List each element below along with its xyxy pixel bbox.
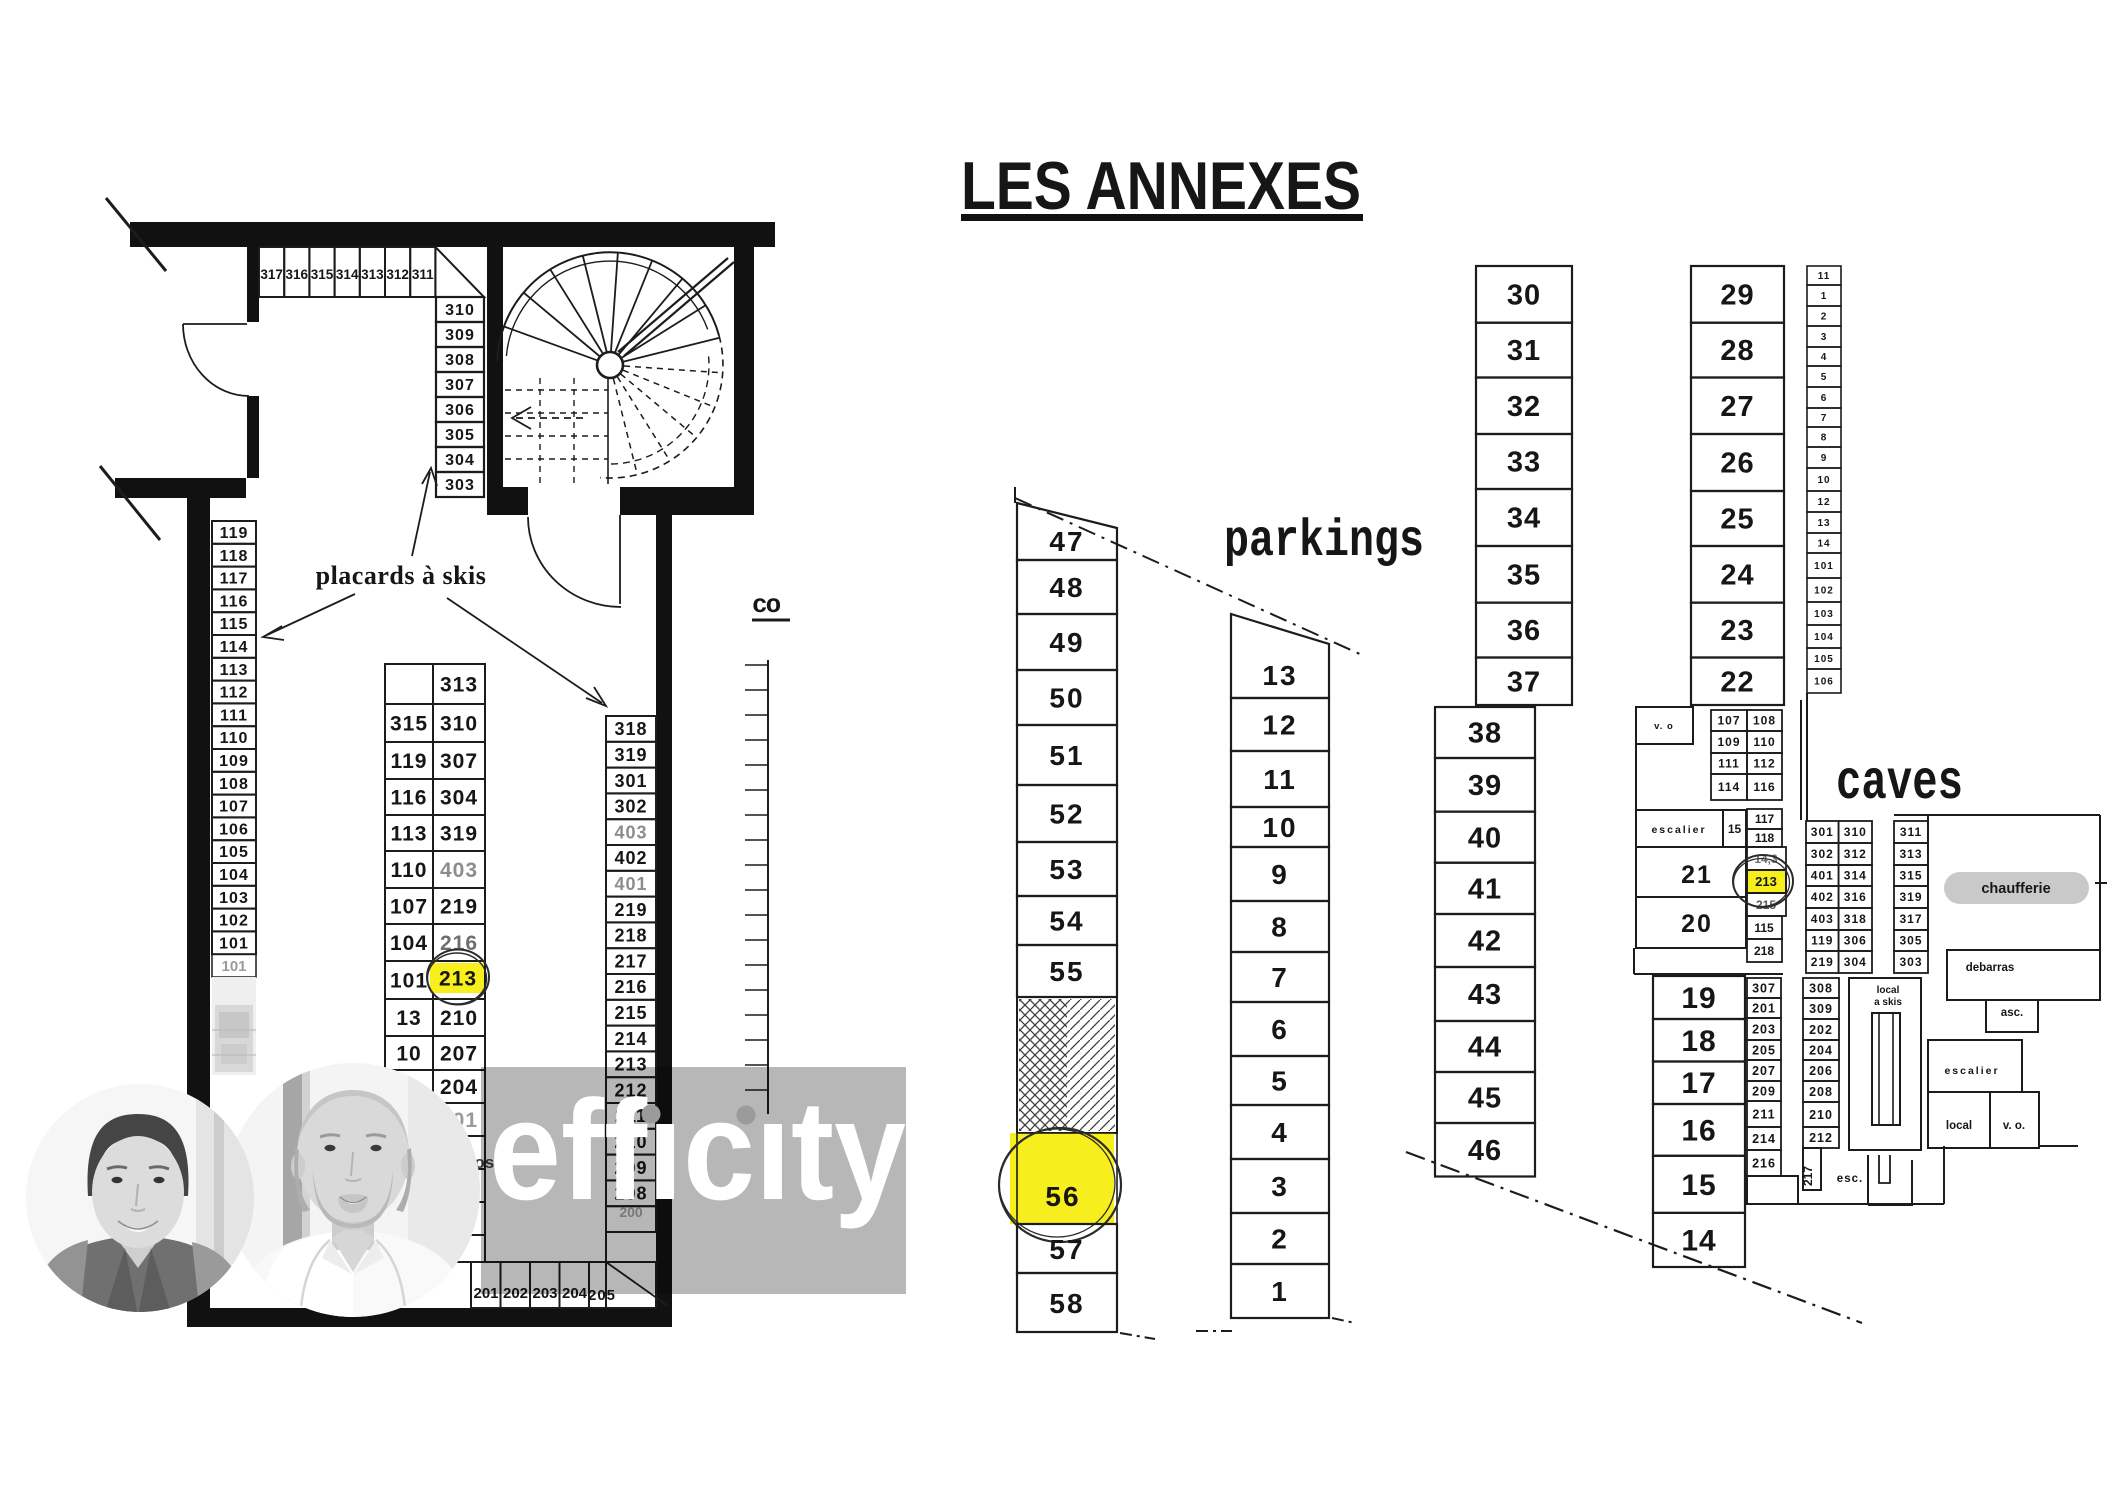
svg-text:101: 101 (390, 970, 428, 993)
svg-text:debarras: debarras (1966, 962, 2015, 974)
svg-text:118: 118 (220, 548, 249, 565)
svg-text:39: 39 (1468, 770, 1502, 802)
svg-text:23: 23 (1720, 615, 1754, 647)
svg-text:5: 5 (1821, 372, 1828, 383)
svg-text:211: 211 (1752, 1107, 1775, 1121)
svg-text:3: 3 (1271, 1171, 1289, 1202)
svg-text:13: 13 (1817, 518, 1830, 529)
svg-text:20: 20 (1681, 910, 1713, 938)
svg-text:49: 49 (1049, 627, 1084, 658)
svg-text:104: 104 (390, 932, 428, 955)
svg-text:305: 305 (1899, 934, 1922, 948)
svg-text:escalier: escalier (1651, 824, 1706, 836)
svg-text:13: 13 (396, 1007, 421, 1030)
svg-text:101: 101 (1814, 561, 1834, 572)
svg-text:escalier: escalier (1944, 1065, 1999, 1077)
svg-text:a skis: a skis (1874, 997, 1902, 1008)
svg-text:112: 112 (1753, 757, 1775, 771)
svg-text:8: 8 (1271, 912, 1289, 943)
svg-text:205: 205 (1752, 1043, 1776, 1057)
svg-text:106: 106 (1814, 677, 1834, 688)
svg-text:v. o: v. o (1654, 721, 1674, 732)
svg-text:29: 29 (1720, 280, 1754, 312)
svg-text:310: 310 (445, 302, 475, 319)
svg-text:38: 38 (1468, 718, 1502, 750)
svg-text:11: 11 (1263, 764, 1297, 795)
svg-text:318: 318 (1844, 912, 1867, 926)
svg-text:301: 301 (1811, 825, 1834, 839)
svg-text:31: 31 (1507, 335, 1541, 367)
svg-text:208: 208 (1809, 1085, 1833, 1099)
svg-text:102: 102 (1814, 586, 1834, 597)
svg-text:214: 214 (614, 1029, 647, 1049)
svg-text:55: 55 (1049, 956, 1084, 987)
svg-text:50: 50 (1049, 683, 1084, 714)
svg-text:13: 13 (1262, 660, 1297, 691)
svg-text:6: 6 (1821, 393, 1828, 404)
svg-text:108: 108 (1753, 714, 1776, 728)
svg-text:12: 12 (1262, 710, 1297, 741)
svg-text:16: 16 (1681, 1114, 1716, 1147)
svg-text:319: 319 (1899, 890, 1922, 904)
svg-text:202: 202 (1809, 1023, 1833, 1037)
svg-text:302: 302 (1811, 847, 1834, 861)
svg-text:54: 54 (1049, 906, 1084, 937)
svg-text:9: 9 (1821, 453, 1828, 464)
svg-text:315: 315 (1899, 869, 1922, 883)
svg-text:101: 101 (221, 958, 246, 975)
svg-text:26: 26 (1720, 448, 1754, 480)
svg-text:213: 213 (439, 968, 477, 991)
svg-text:10: 10 (396, 1043, 421, 1066)
svg-text:217: 217 (1801, 1166, 1815, 1186)
svg-text:116: 116 (220, 593, 249, 610)
svg-text:15: 15 (1728, 822, 1742, 836)
svg-text:2: 2 (1821, 312, 1828, 323)
svg-text:304: 304 (440, 787, 478, 810)
svg-text:401: 401 (1811, 869, 1834, 883)
svg-text:local: local (1877, 985, 1900, 996)
svg-text:315: 315 (390, 713, 428, 736)
svg-text:307: 307 (445, 377, 475, 394)
svg-text:301: 301 (614, 771, 647, 791)
svg-text:302: 302 (614, 797, 647, 817)
svg-text:58: 58 (1049, 1288, 1084, 1319)
svg-text:14: 14 (1681, 1225, 1716, 1258)
svg-text:108: 108 (219, 776, 249, 793)
svg-text:313: 313 (440, 674, 478, 697)
svg-text:207: 207 (1752, 1064, 1776, 1078)
svg-text:101: 101 (219, 935, 249, 952)
svg-text:57: 57 (1049, 1234, 1084, 1265)
svg-text:114: 114 (220, 639, 249, 656)
svg-text:313: 313 (1899, 847, 1922, 861)
svg-text:21: 21 (1681, 861, 1713, 889)
svg-text:effıcıty: effıcıty (489, 1071, 906, 1230)
svg-text:206: 206 (1809, 1064, 1833, 1078)
svg-text:1: 1 (1271, 1276, 1289, 1307)
svg-text:15: 15 (1681, 1169, 1716, 1202)
svg-text:41: 41 (1468, 874, 1502, 906)
svg-text:36: 36 (1507, 615, 1541, 647)
svg-text:203: 203 (1752, 1022, 1776, 1036)
svg-text:12: 12 (1817, 497, 1830, 508)
svg-text:119: 119 (1811, 934, 1833, 948)
svg-text:315: 315 (311, 267, 334, 282)
svg-text:118: 118 (1755, 831, 1775, 845)
svg-text:25: 25 (1720, 504, 1754, 536)
svg-text:27: 27 (1720, 391, 1754, 423)
svg-text:110: 110 (220, 730, 249, 747)
svg-text:216: 216 (614, 977, 647, 997)
svg-text:107: 107 (219, 799, 249, 816)
svg-text:117: 117 (1755, 812, 1775, 826)
svg-text:116: 116 (1753, 780, 1775, 794)
svg-text:42: 42 (1468, 926, 1502, 958)
svg-text:319: 319 (440, 823, 478, 846)
svg-text:30: 30 (1507, 280, 1541, 312)
svg-text:316: 316 (286, 267, 309, 282)
svg-text:105: 105 (219, 844, 249, 861)
svg-text:310: 310 (1844, 825, 1867, 839)
svg-text:14: 14 (1817, 539, 1830, 550)
svg-text:v. o.: v. o. (2003, 1120, 2025, 1132)
svg-text:216: 216 (1752, 1156, 1776, 1170)
svg-text:32: 32 (1507, 391, 1541, 423)
svg-text:112: 112 (220, 685, 249, 702)
svg-text:7: 7 (1821, 413, 1828, 424)
svg-text:17: 17 (1681, 1067, 1716, 1100)
svg-text:213: 213 (1755, 874, 1777, 889)
svg-text:116: 116 (391, 787, 428, 810)
svg-text:56: 56 (1045, 1181, 1080, 1212)
svg-text:2: 2 (1271, 1224, 1289, 1255)
svg-text:218: 218 (1754, 944, 1774, 958)
svg-text:117: 117 (220, 571, 249, 588)
svg-text:207: 207 (440, 1043, 478, 1066)
svg-text:11: 11 (1818, 271, 1831, 282)
svg-text:parkings: parkings (1224, 512, 1424, 571)
svg-text:314: 314 (336, 267, 359, 282)
svg-text:201: 201 (1752, 1001, 1776, 1015)
svg-text:LES ANNEXES: LES ANNEXES (961, 148, 1361, 224)
svg-text:43: 43 (1468, 979, 1502, 1011)
svg-text:esc.: esc. (1837, 1173, 1863, 1185)
svg-text:217: 217 (614, 951, 647, 971)
svg-text:309: 309 (1809, 1002, 1833, 1016)
svg-text:214: 214 (1752, 1132, 1776, 1146)
svg-text:52: 52 (1049, 799, 1084, 830)
svg-text:402: 402 (1811, 890, 1834, 904)
svg-text:37: 37 (1507, 666, 1541, 698)
svg-text:34: 34 (1507, 503, 1541, 535)
svg-text:104: 104 (219, 867, 249, 884)
svg-text:107: 107 (1717, 714, 1740, 728)
svg-text:209: 209 (1752, 1084, 1776, 1098)
svg-text:210: 210 (1809, 1108, 1833, 1122)
svg-text:109: 109 (1717, 735, 1740, 749)
svg-text:106: 106 (219, 821, 249, 838)
svg-text:304: 304 (445, 452, 475, 469)
svg-text:51: 51 (1049, 740, 1084, 771)
svg-text:103: 103 (1814, 609, 1834, 620)
svg-text:102: 102 (219, 913, 249, 930)
svg-text:304: 304 (1844, 955, 1867, 969)
svg-text:9: 9 (1271, 859, 1289, 890)
svg-text:312: 312 (1844, 847, 1867, 861)
svg-text:318: 318 (614, 719, 647, 739)
svg-text:53: 53 (1049, 854, 1084, 885)
svg-text:113: 113 (220, 662, 249, 679)
svg-text:306: 306 (1844, 934, 1867, 948)
svg-text:310: 310 (440, 713, 478, 736)
svg-text:104: 104 (1814, 632, 1834, 643)
svg-text:4: 4 (1271, 1117, 1289, 1148)
svg-text:110: 110 (391, 859, 428, 882)
svg-text:308: 308 (445, 352, 475, 369)
svg-text:316: 316 (1844, 890, 1867, 904)
svg-text:204: 204 (1809, 1043, 1833, 1057)
svg-text:403: 403 (1811, 912, 1834, 926)
svg-text:311: 311 (412, 267, 434, 282)
svg-text:33: 33 (1507, 447, 1541, 479)
svg-text:308: 308 (1809, 981, 1833, 995)
svg-text:401: 401 (614, 874, 647, 894)
svg-text:107: 107 (390, 896, 428, 919)
svg-text:317: 317 (1899, 912, 1922, 926)
svg-text:119: 119 (220, 525, 249, 542)
svg-text:111: 111 (220, 707, 248, 724)
svg-text:219: 219 (1811, 955, 1834, 969)
svg-text:305: 305 (445, 427, 475, 444)
svg-text:303: 303 (1899, 955, 1922, 969)
svg-text:210: 210 (440, 1007, 478, 1030)
svg-text:119: 119 (391, 750, 428, 773)
svg-text:219: 219 (614, 900, 647, 920)
svg-text:46: 46 (1468, 1135, 1502, 1167)
svg-text:24: 24 (1720, 559, 1754, 591)
svg-text:309: 309 (445, 327, 475, 344)
svg-text:306: 306 (445, 402, 475, 419)
svg-text:1: 1 (1821, 291, 1828, 302)
svg-text:7: 7 (1271, 962, 1289, 993)
svg-text:312: 312 (386, 267, 409, 282)
svg-text:115: 115 (220, 616, 249, 633)
svg-text:48: 48 (1049, 572, 1084, 603)
svg-text:19: 19 (1681, 982, 1716, 1015)
svg-text:110: 110 (1753, 735, 1775, 749)
svg-text:105: 105 (1814, 654, 1834, 665)
svg-text:4: 4 (1821, 352, 1828, 363)
svg-text:212: 212 (1809, 1131, 1833, 1145)
svg-text:3: 3 (1821, 332, 1828, 343)
svg-text:113: 113 (391, 823, 428, 846)
svg-text:219: 219 (440, 896, 478, 919)
svg-text:44: 44 (1468, 1032, 1502, 1064)
svg-text:317: 317 (260, 267, 283, 282)
svg-text:22: 22 (1720, 666, 1754, 698)
svg-text:10: 10 (1817, 475, 1830, 486)
svg-text:45: 45 (1468, 1083, 1502, 1115)
svg-text:40: 40 (1468, 822, 1502, 854)
svg-text:placards à skis: placards à skis (316, 561, 487, 590)
svg-text:311: 311 (1900, 825, 1922, 839)
svg-text:215: 215 (614, 1003, 647, 1023)
svg-text:204: 204 (440, 1076, 478, 1099)
svg-text:403: 403 (440, 859, 478, 882)
svg-text:35: 35 (1507, 559, 1541, 591)
svg-text:28: 28 (1720, 335, 1754, 367)
svg-text:6: 6 (1271, 1014, 1289, 1045)
svg-text:303: 303 (445, 477, 475, 494)
svg-text:319: 319 (614, 745, 647, 765)
svg-text:18: 18 (1681, 1025, 1716, 1058)
svg-text:403: 403 (614, 822, 647, 842)
svg-text:local: local (1946, 1120, 1972, 1132)
svg-text:313: 313 (361, 267, 384, 282)
svg-text:218: 218 (614, 926, 647, 946)
svg-text:307: 307 (1752, 981, 1776, 995)
svg-text:115: 115 (1754, 921, 1774, 935)
svg-text:47: 47 (1049, 526, 1084, 557)
svg-text:402: 402 (614, 848, 647, 868)
svg-text:chaufferie: chaufferie (1981, 881, 2050, 897)
svg-text:asc.: asc. (2001, 1007, 2023, 1019)
svg-text:307: 307 (440, 750, 478, 773)
svg-text:314: 314 (1844, 869, 1867, 883)
svg-text:8: 8 (1821, 433, 1828, 444)
svg-text:109: 109 (219, 753, 249, 770)
svg-text:111: 111 (1718, 757, 1740, 771)
svg-text:5: 5 (1271, 1066, 1289, 1097)
svg-text:114: 114 (1718, 780, 1740, 794)
svg-text:co: co (752, 590, 781, 620)
svg-text:10: 10 (1262, 812, 1297, 843)
svg-text:caves: caves (1836, 751, 1963, 815)
svg-text:103: 103 (219, 890, 249, 907)
